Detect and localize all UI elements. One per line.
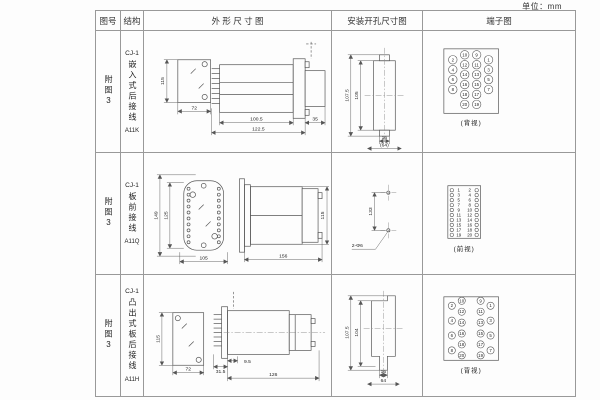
terminal-diagram-a11q: 1 3 5 7 9 11 13 15 17 19 2 4 6 8 10 12 1 <box>423 153 575 274</box>
terminal-circles <box>450 189 478 237</box>
fig-no-cell-row3: 附图3 <box>96 275 121 397</box>
dim-label-inner-h: 125 <box>163 211 169 219</box>
fig-no-text: 附图3 <box>104 197 112 230</box>
model-label: CJ-1 <box>125 182 139 189</box>
mounting-cell-row2: 133 2-Φ6 <box>332 153 423 275</box>
terminal-number: 19 <box>456 232 461 237</box>
dim-label-body: 100.5 <box>250 117 263 123</box>
terminal-number: 18 <box>462 92 467 97</box>
fig-no-cell-row1: 附图3 <box>96 31 121 153</box>
terminal-cell-row2: 1 3 5 7 9 11 13 15 17 19 2 4 6 8 10 12 1 <box>423 153 576 275</box>
relay-front-view <box>178 60 211 103</box>
mounting-cell-row3: 107.5 104 16 64 <box>332 275 423 397</box>
dim-label-step: 9.5 <box>244 359 251 365</box>
structure-text: 凸出式板后接线 <box>128 298 136 372</box>
terminal-number: 19 <box>474 102 479 107</box>
dim-label-width: 72 <box>186 367 192 373</box>
structure-text: 嵌入式后接线 <box>128 60 136 123</box>
view-caption: (前视) <box>454 244 475 253</box>
dim-label-height: 115 <box>155 335 161 343</box>
terminal-diagram-a11h: 2 4 6 8 10 12 14 16 18 20 9 11 13 15 17 … <box>423 275 575 396</box>
center-lines <box>364 291 404 376</box>
terminal-number: 20 <box>462 102 467 107</box>
header-terminal: 端子图 <box>423 11 576 31</box>
outline-cell-row1: 115 72 100.5 122.5 35 <box>144 31 332 153</box>
outline-drawing-a11q: 149 125 105 156 115 <box>144 153 331 274</box>
dimension-lines <box>348 296 399 384</box>
structure-code: A11K <box>125 128 139 134</box>
terminal-number: 14 <box>459 320 464 325</box>
mounting-drawing-a11h: 107.5 104 16 64 <box>332 275 422 396</box>
terminal-number: 17 <box>478 342 483 347</box>
structure-cell-row1: CJ-1 嵌入式后接线 A11K <box>121 31 144 153</box>
mounting-drawing-a11k: 107.5 105 16 (64) <box>332 31 422 152</box>
header-outline: 外 形 尺 寸 图 <box>144 11 332 31</box>
relay-front-view <box>173 313 204 366</box>
model-label: CJ-1 <box>125 288 139 295</box>
fig-no-cell-row2: 附图3 <box>96 153 121 275</box>
dimension-lines <box>348 55 401 149</box>
terminal-numbers: 2 4 6 8 10 12 14 16 18 20 9 11 13 15 17 … <box>451 298 493 358</box>
dim-label-slot: 16 <box>382 135 388 141</box>
outline-cell-row2: 149 125 105 156 115 <box>144 153 332 275</box>
terminal-number: 20 <box>459 353 464 358</box>
terminal-circles <box>448 297 494 359</box>
terminal-number: 15 <box>478 331 483 336</box>
center-lines <box>365 48 405 143</box>
terminal-number: 17 <box>474 92 479 97</box>
dim-label-slot: 16 <box>381 369 387 375</box>
structure-code: A11H <box>125 377 140 383</box>
dim-label-front: 31.5 <box>216 369 226 375</box>
dim-label-overall: (64) <box>380 143 389 149</box>
outline-drawing-a11k: 115 72 100.5 122.5 35 <box>144 31 331 152</box>
terminal-number: 20 <box>467 232 472 237</box>
structure-code: A11Q <box>125 239 140 245</box>
terminal-number: 10 <box>462 52 467 57</box>
terminal-number: 12 <box>459 309 464 314</box>
mounting-cell-row1: 107.5 105 16 (64) <box>332 31 423 153</box>
dim-label-pitch: 133 <box>368 207 374 216</box>
terminal-number: 19 <box>478 353 483 358</box>
outline-cell-row3: 115 72 31.5 9.5 126 <box>144 275 332 397</box>
spec-table: 图号 结构 外 形 尺 寸 图 安装开孔尺寸图 端子图 附图3 CJ-1 嵌入式… <box>95 10 576 397</box>
dim-label-overall: 64 <box>381 378 387 384</box>
terminal-diagram-a11k: 2 4 6 8 10 12 14 16 18 20 9 11 13 15 17 … <box>423 31 575 152</box>
terminal-number: 11 <box>474 62 479 67</box>
structure-cell-row2: CJ-1 板前接线 A11Q <box>121 153 144 275</box>
dim-label-inner: 104 <box>354 328 360 337</box>
model-label: CJ-1 <box>125 50 139 57</box>
header-fig-no: 图号 <box>96 11 121 31</box>
relay-side-view <box>212 42 325 118</box>
terminal-number: 16 <box>462 82 467 87</box>
terminal-circles <box>449 51 493 109</box>
terminal-number: 13 <box>478 320 483 325</box>
header-mounting: 安装开孔尺寸图 <box>332 11 423 31</box>
dim-label-outer-h: 149 <box>153 211 159 219</box>
terminal-number: 11 <box>478 309 483 314</box>
terminal-number: 16 <box>459 331 464 336</box>
dim-label-length: 156 <box>279 254 288 260</box>
dim-label-outer: 107.5 <box>344 89 350 102</box>
dim-label-width: 72 <box>191 105 197 111</box>
dim-label-holes: 2-Φ6 <box>352 243 363 249</box>
mounting-drawing-a11q: 133 2-Φ6 <box>332 153 422 274</box>
relay-side-view <box>214 292 325 358</box>
fig-no-text: 附图3 <box>104 319 112 352</box>
outline-drawing-a11h: 115 72 31.5 9.5 126 <box>144 275 331 396</box>
dim-label-width: 105 <box>200 256 209 262</box>
dim-label-length: 126 <box>269 372 278 378</box>
terminal-number: 10 <box>459 298 464 303</box>
dim-label-height: 115 <box>320 211 326 219</box>
terminal-number: 12 <box>462 62 467 67</box>
terminal-number: 18 <box>459 342 464 347</box>
terminal-number: 14 <box>462 72 467 77</box>
fig-no-text: 附图3 <box>104 75 112 108</box>
terminal-cell-row1: 2 4 6 8 10 12 14 16 18 20 9 11 13 15 17 … <box>423 31 576 153</box>
document-page: 单位：mm 图号 结构 外 形 尺 寸 图 安装开孔尺寸图 端子图 附图3 CJ… <box>0 0 600 400</box>
terminal-number: 13 <box>474 72 479 77</box>
dim-label-height: 115 <box>160 77 166 85</box>
relay-side-view <box>239 179 322 252</box>
relay-front-view <box>184 181 224 250</box>
dimension-lines <box>157 175 329 264</box>
header-structure: 结构 <box>121 11 144 31</box>
structure-text: 板前接线 <box>128 192 136 234</box>
dim-label-rear: 35 <box>312 117 318 123</box>
dim-label-overall: 122.5 <box>252 127 265 133</box>
dimension-lines <box>164 60 325 135</box>
view-caption: (背视) <box>461 366 482 375</box>
structure-cell-row3: CJ-1 凸出式板后接线 A11H <box>121 275 144 397</box>
dim-label-inner: 105 <box>354 91 360 100</box>
dim-label-outer: 107.5 <box>344 326 350 339</box>
terminal-cell-row3: 2 4 6 8 10 12 14 16 18 20 9 11 13 15 17 … <box>423 275 576 397</box>
view-caption: (背视) <box>461 118 482 127</box>
terminal-numbers: 1 3 5 7 9 11 13 15 17 19 2 4 6 8 10 12 1 <box>456 188 472 238</box>
dimension-lines <box>352 193 388 250</box>
terminal-number: 15 <box>474 82 479 87</box>
